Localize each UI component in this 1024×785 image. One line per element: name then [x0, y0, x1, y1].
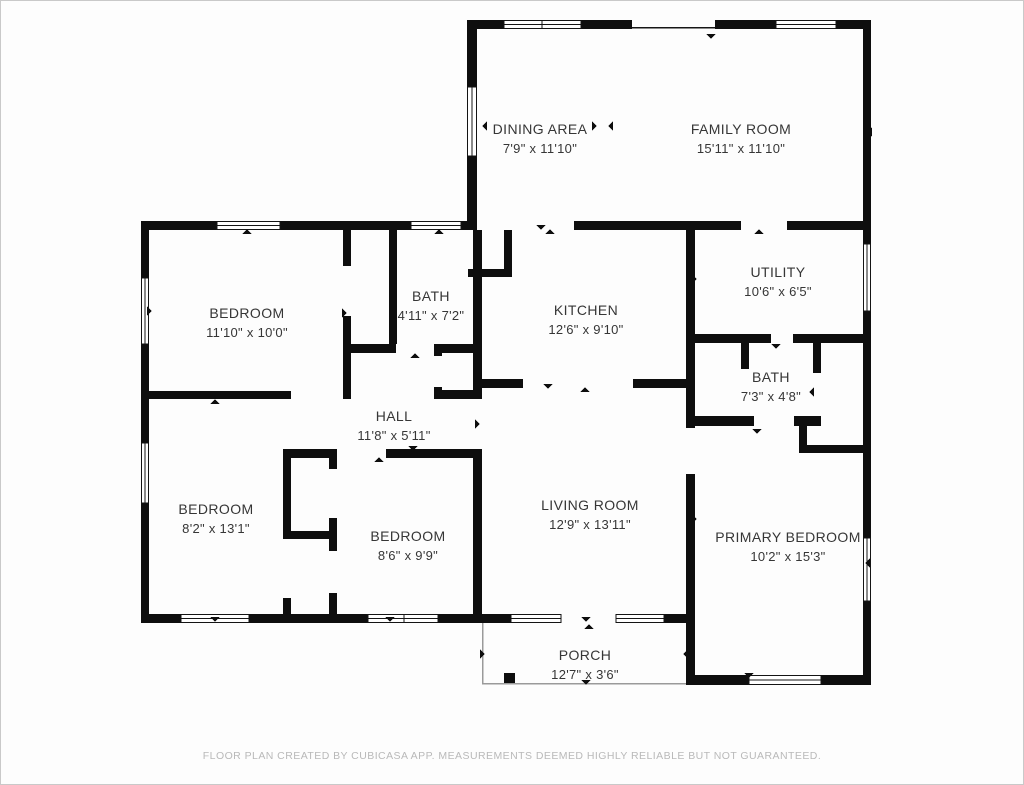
- floor-plan-page: DINING AREA 7'9" x 11'10" FAMILY ROOM 15…: [0, 0, 1024, 785]
- room-label-bedroom-middle: BEDROOM 8'6" x 9'9": [370, 529, 445, 563]
- floor-plan-drawing: [1, 1, 1024, 785]
- room-label-hall: HALL 11'8" x 5'11": [357, 409, 430, 443]
- room-label-utility: UTILITY 10'6" x 6'5": [744, 265, 812, 299]
- room-label-living-room: LIVING ROOM 12'9" x 13'11": [541, 498, 639, 532]
- room-label-kitchen: KITCHEN 12'6" x 9'10": [548, 303, 623, 337]
- room-label-bedroom-sw: BEDROOM 8'2" x 13'1": [178, 502, 253, 536]
- room-label-porch: PORCH 12'7" x 3'6": [551, 648, 619, 682]
- walls: [141, 20, 871, 685]
- room-label-bath-1: BATH 4'11" x 7'2": [398, 289, 465, 323]
- room-label-primary-bedroom: PRIMARY BEDROOM 10'2" x 15'3": [715, 530, 861, 564]
- room-label-family-room: FAMILY ROOM 15'11" x 11'10": [691, 122, 791, 156]
- room-label-bath-2: BATH 7'3" x 4'8": [741, 370, 801, 404]
- room-label-bedroom-nw: BEDROOM 11'10" x 10'0": [206, 306, 288, 340]
- footer-disclaimer: FLOOR PLAN CREATED BY CUBICASA APP. MEAS…: [1, 750, 1023, 762]
- room-label-dining-area: DINING AREA 7'9" x 11'10": [493, 122, 588, 156]
